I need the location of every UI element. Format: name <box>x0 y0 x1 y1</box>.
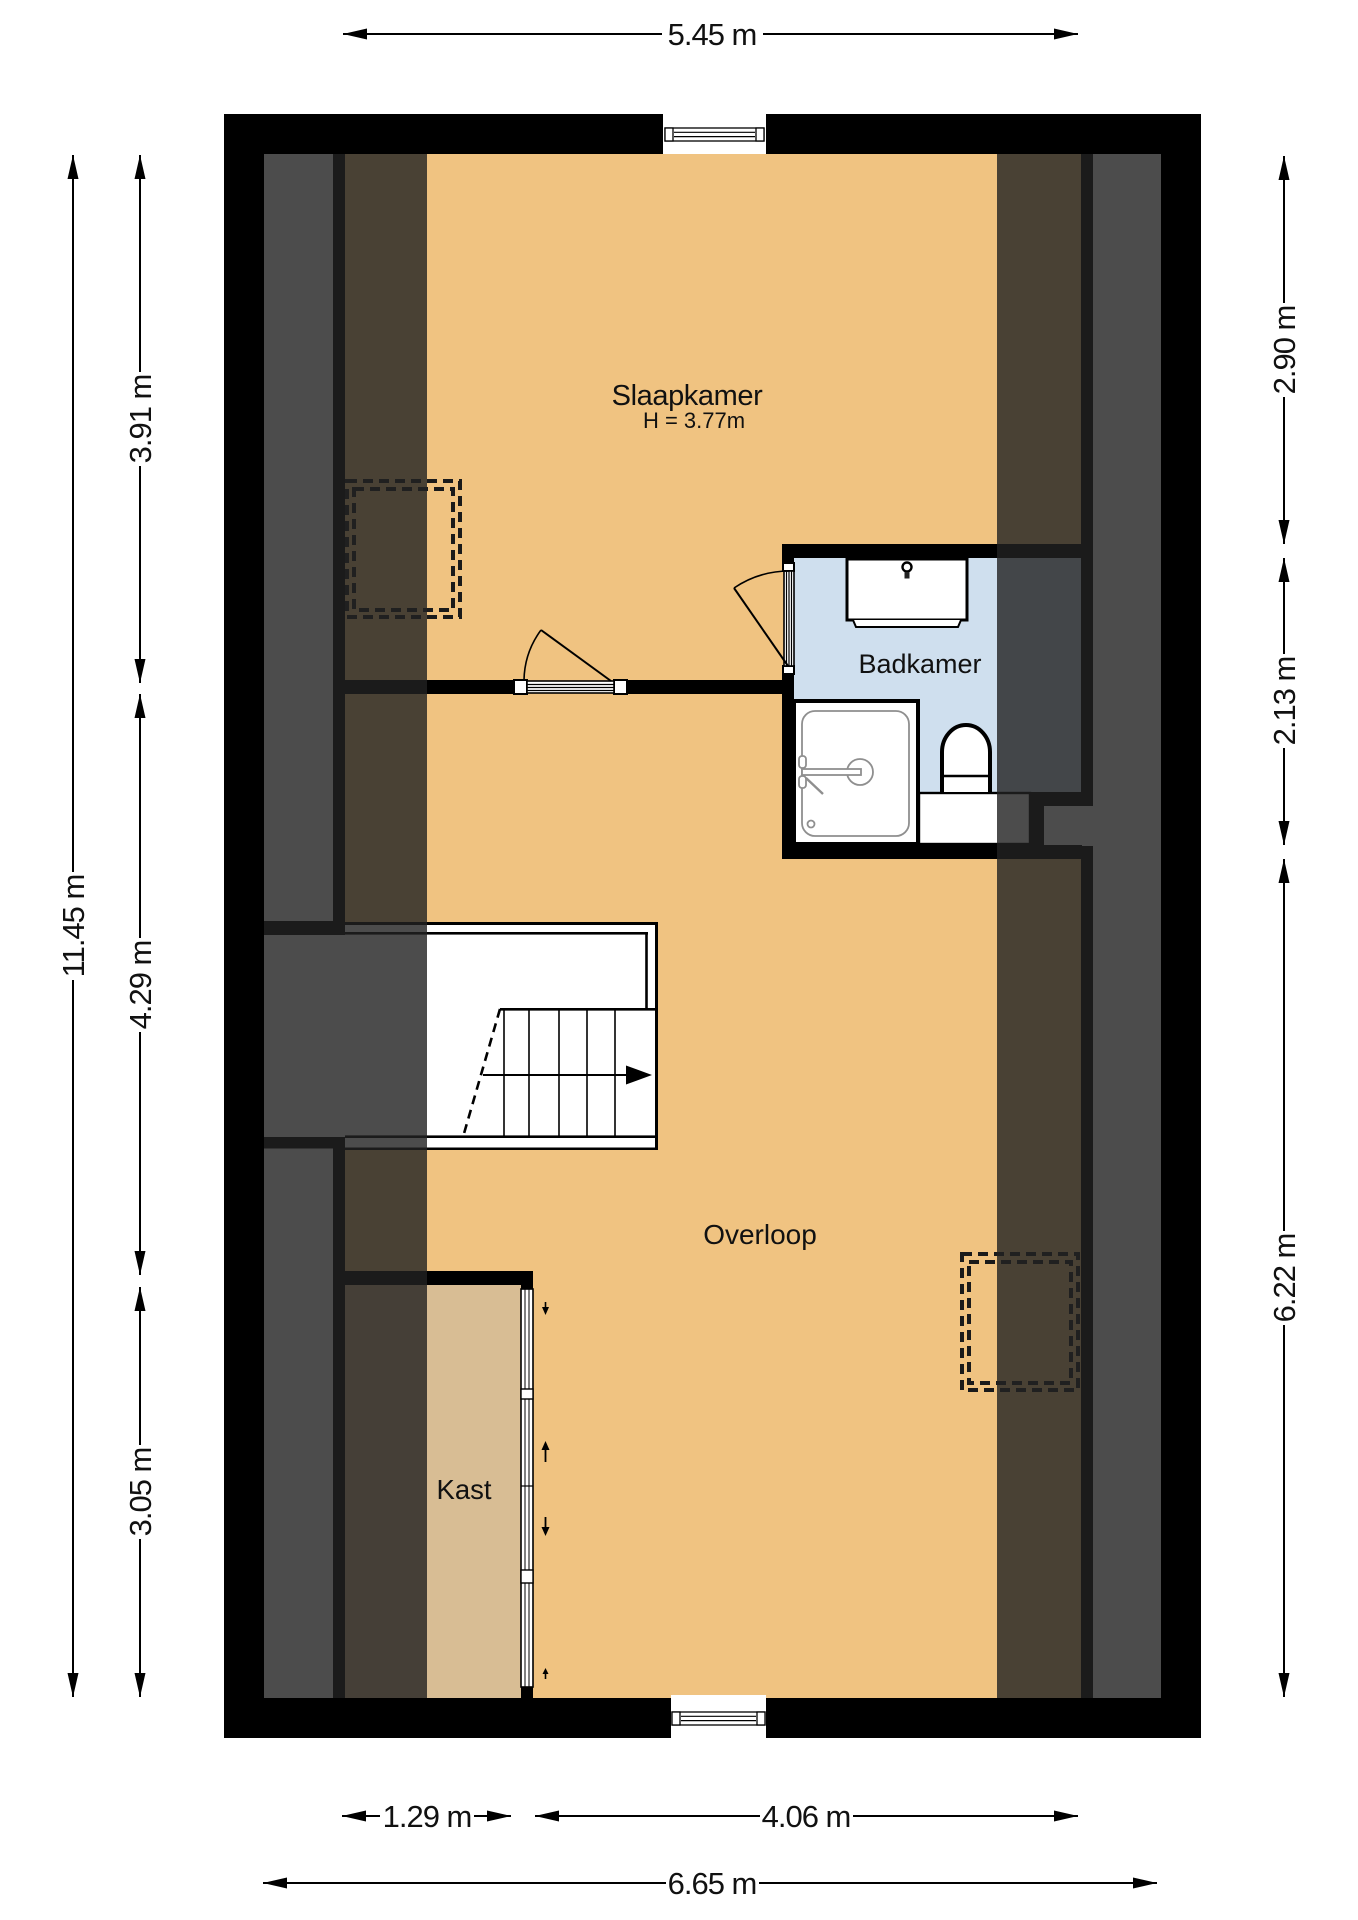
svg-text:3.91 m: 3.91 m <box>123 375 158 464</box>
svg-text:1.29 m: 1.29 m <box>383 1799 472 1834</box>
svg-text:6.22 m: 6.22 m <box>1267 1234 1302 1323</box>
svg-text:4.06 m: 4.06 m <box>762 1799 851 1834</box>
svg-text:6.65 m: 6.65 m <box>668 1866 757 1901</box>
svg-text:3.05 m: 3.05 m <box>123 1448 158 1537</box>
svg-text:2.90 m: 2.90 m <box>1267 306 1302 395</box>
svg-text:Overloop: Overloop <box>703 1219 817 1250</box>
svg-text:2.13 m: 2.13 m <box>1267 657 1302 746</box>
svg-text:5.45 m: 5.45 m <box>668 17 757 52</box>
svg-text:11.45 m: 11.45 m <box>56 875 91 978</box>
svg-text:Badkamer: Badkamer <box>858 649 981 679</box>
svg-text:4.29 m: 4.29 m <box>123 941 158 1030</box>
svg-text:Kast: Kast <box>436 1474 491 1505</box>
svg-text:H = 3.77m: H = 3.77m <box>643 408 745 433</box>
